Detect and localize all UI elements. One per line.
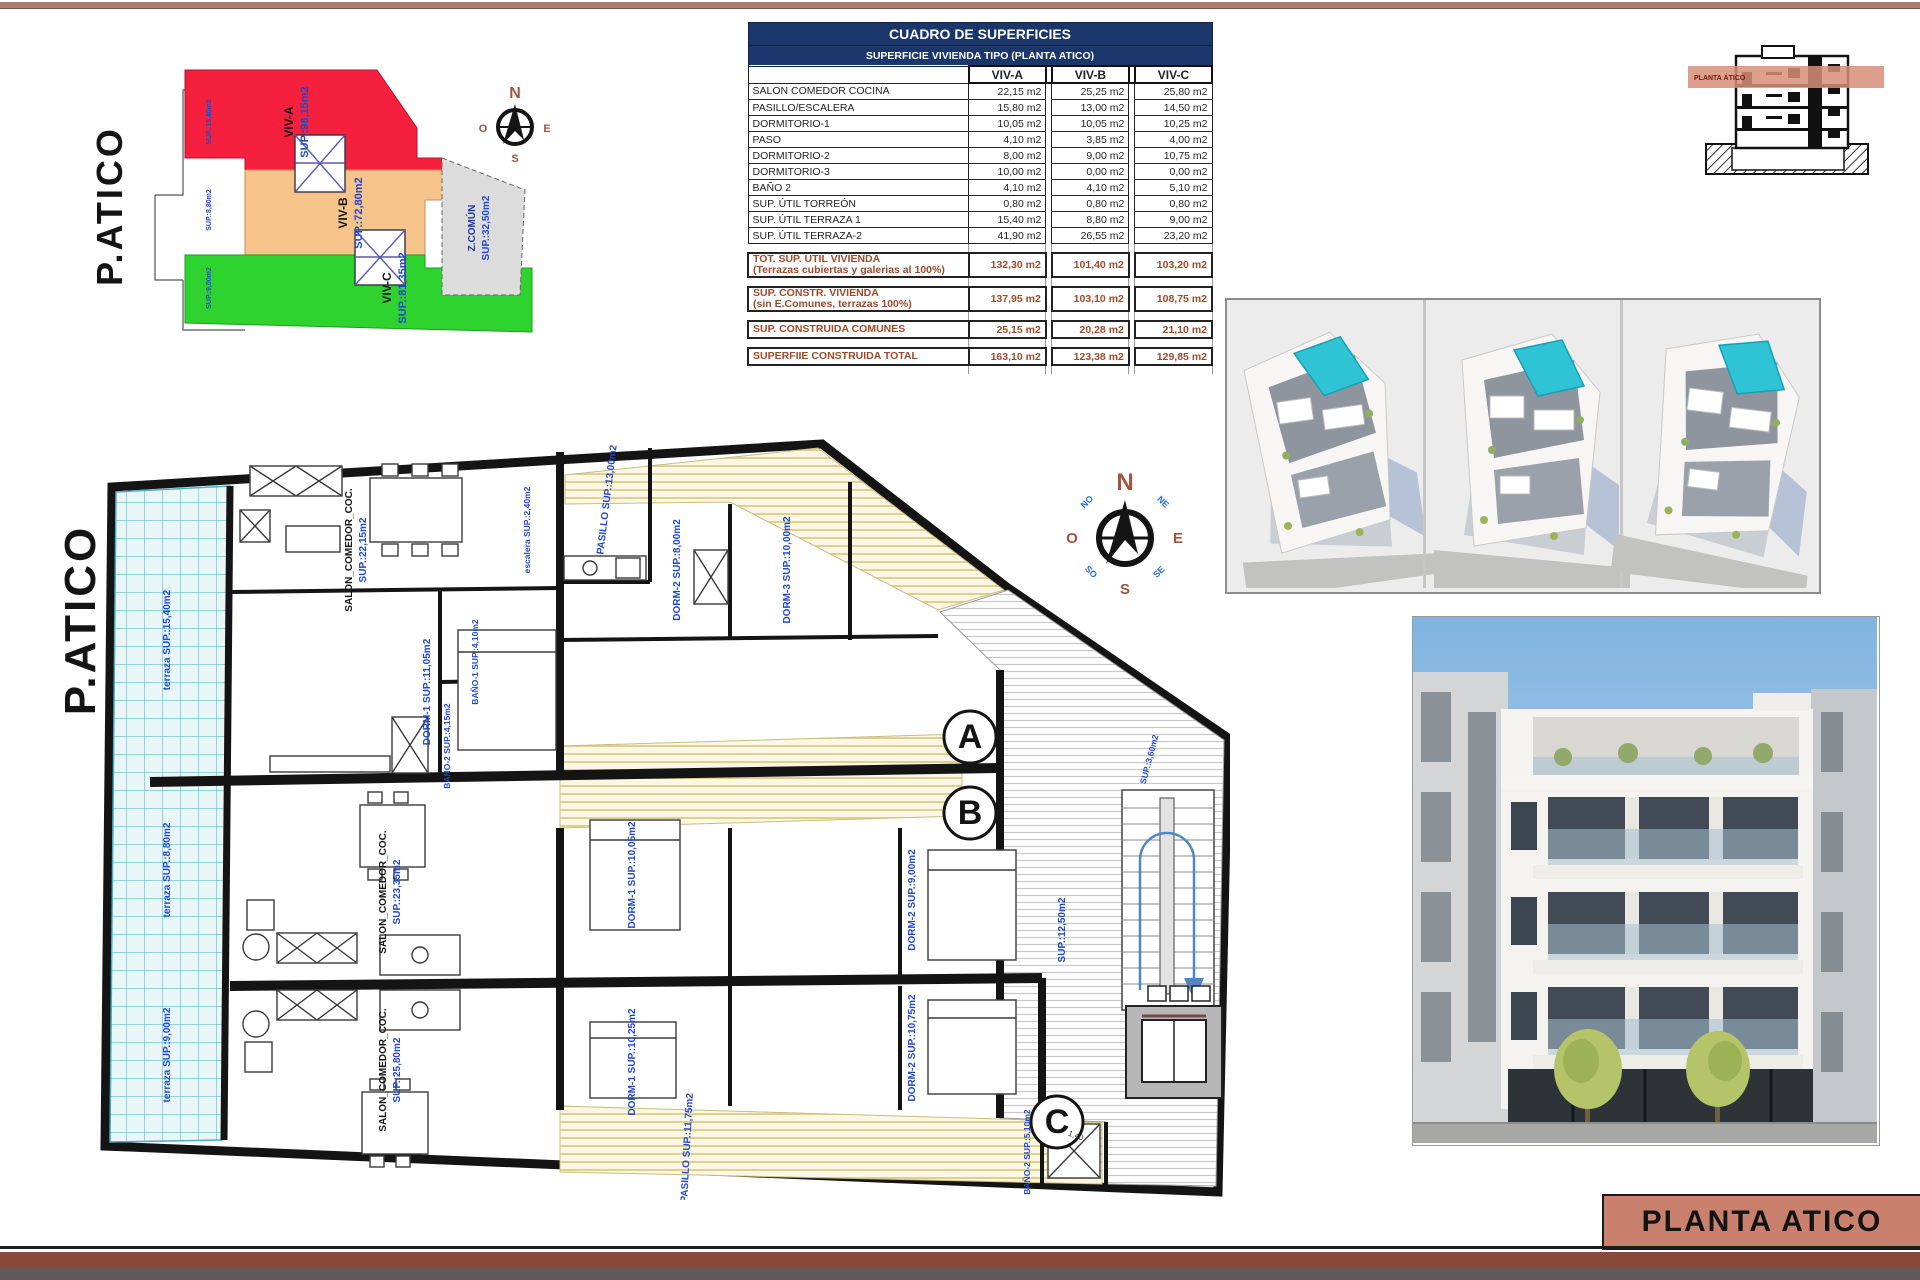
summary-value: 21,10 m2 — [1135, 321, 1212, 338]
ground-floor — [1508, 1069, 1813, 1125]
summary-value: 103,20 m2 — [1135, 253, 1212, 277]
table-value: 8,00 m2 — [969, 148, 1046, 164]
neighbor-building-right — [1811, 689, 1877, 1143]
zone-b-sup: SUP.:72,80m2 — [353, 177, 365, 248]
unit-marker-b: B — [958, 794, 983, 832]
zone-b-name: VIV-B — [336, 197, 350, 229]
table-row-label: PASILLO/ESCALERA — [748, 100, 969, 116]
table-value: 22,15 m2 — [969, 83, 1046, 100]
svg-text:terraza SUP.:15,40m2: terraza SUP.:15,40m2 — [162, 589, 173, 690]
svg-text:DORM-1 SUP.:11,05m2: DORM-1 SUP.:11,05m2 — [422, 638, 433, 745]
svg-text:terraza SUP.:9,00m2: terraza SUP.:9,00m2 — [162, 1007, 173, 1102]
areas-table: CUADRO DE SUPERFICIES SUPERFICIE VIVIEND… — [747, 22, 1213, 374]
svg-text:DORM-1 SUP.:10,25m2: DORM-1 SUP.:10,25m2 — [627, 1008, 638, 1116]
road — [1413, 1123, 1877, 1143]
sheet-title: PLANTA ATICO — [1642, 1205, 1883, 1239]
svg-text:DORM-3 SUP.:10,00m2: DORM-3 SUP.:10,00m2 — [782, 516, 793, 624]
svg-text:N: N — [509, 85, 521, 102]
zone-comun-name: Z.COMÚN — [465, 205, 478, 252]
svg-text:SALON_COMEDOR_COC.: SALON_COMEDOR_COC. — [378, 830, 389, 954]
table-value: 8,80 m2 — [1052, 212, 1129, 228]
summary-row-label: SUP. CONSTR. VIVIENDA(sin E.Comunes, ter… — [748, 287, 969, 311]
table-cell — [1052, 244, 1129, 254]
table-row-label: DORMITORIO-1 — [748, 116, 969, 132]
svg-text:BAÑO-2 SUP.:4,15m2: BAÑO-2 SUP.:4,15m2 — [442, 703, 452, 789]
table-value: 10,05 m2 — [1052, 116, 1129, 132]
svg-text:SUP.:12,50m2: SUP.:12,50m2 — [1057, 897, 1068, 962]
zone-a-sup: SUP.:98,15m2 — [299, 86, 311, 157]
staircase — [1122, 790, 1214, 1010]
svg-text:SUP.:25,80m2: SUP.:25,80m2 — [392, 1037, 403, 1102]
edge-sup-c: SUP.:9,00m2 — [206, 267, 213, 309]
table-cell — [969, 338, 1046, 348]
table-subtitle: SUPERFICIE VIVIENDA TIPO (PLANTA ATICO) — [748, 46, 1212, 67]
floor-plan: A B C PASILLO SUP.:13,00m2 SALON_COMEDOR… — [90, 430, 1230, 1200]
table-value: 0,00 m2 — [1135, 164, 1212, 180]
table-cell — [1052, 338, 1129, 348]
table-value: 0,00 m2 — [1052, 164, 1129, 180]
zone-c-sup: SUP.:81,35m2 — [397, 252, 409, 323]
svg-text:DORM-2 SUP.:8,00m2: DORM-2 SUP.:8,00m2 — [672, 519, 683, 621]
svg-text:terraza SUP.:8,80m2: terraza SUP.:8,80m2 — [162, 822, 173, 917]
table-value: 5,10 m2 — [1135, 180, 1212, 196]
table-cell — [748, 338, 969, 348]
zone-a-name: VIV-A — [282, 106, 296, 138]
svg-text:SALON_COMEDOR_COC.: SALON_COMEDOR_COC. — [378, 1008, 389, 1132]
table-value: 23,20 m2 — [1135, 228, 1212, 244]
table-value: 0,80 m2 — [1135, 196, 1212, 212]
table-value: 9,00 m2 — [1135, 212, 1212, 228]
table-cell — [748, 277, 969, 287]
table-row-label: SUP. ÚTIL TERRAZA-2 — [748, 228, 969, 244]
table-value: 4,10 m2 — [1052, 180, 1129, 196]
col-viv-a: VIV-A — [969, 66, 1046, 83]
summary-value: 129,85 m2 — [1135, 348, 1212, 365]
unit-marker-a: A — [958, 718, 983, 756]
svg-text:DORM-2 SUP.:10,75m2: DORM-2 SUP.:10,75m2 — [907, 994, 918, 1102]
svg-text:DORM-2 SUP.:9,00m2: DORM-2 SUP.:9,00m2 — [907, 849, 918, 951]
edge-sup-a: SUP.:15,40m2 — [206, 99, 213, 145]
facade-render — [1412, 616, 1880, 1146]
sheet-bottom-edge — [0, 1267, 1920, 1280]
svg-text:O: O — [479, 123, 488, 135]
summary-row-label: SUP. CONSTRUIDA COMUNES — [748, 321, 969, 338]
elevator — [1126, 1006, 1222, 1098]
table-value: 41,90 m2 — [969, 228, 1046, 244]
table-row-label: DORMITORIO-3 — [748, 164, 969, 180]
roof-renders-strip — [1225, 298, 1821, 594]
zone-comun-sup: SUP.:32,50m2 — [481, 195, 492, 260]
sheet-bottom-line — [0, 1246, 1920, 1249]
table-cell — [1135, 311, 1212, 321]
summary-value: 163,10 m2 — [969, 348, 1046, 365]
table-cell — [969, 277, 1046, 287]
unit-marker-c: C — [1045, 1103, 1070, 1141]
svg-text:DORM-1 SUP.:10,05m2: DORM-1 SUP.:10,05m2 — [627, 821, 638, 929]
table-value: 4,10 m2 — [969, 132, 1046, 148]
col-viv-c: VIV-C — [1135, 66, 1212, 83]
table-cell — [1135, 277, 1212, 287]
table-value: 4,10 m2 — [969, 180, 1046, 196]
summary-value: 103,10 m2 — [1052, 287, 1129, 311]
table-value: 10,75 m2 — [1135, 148, 1212, 164]
table-value: 10,00 m2 — [969, 164, 1046, 180]
compass-mini-icon: N S E O — [479, 85, 551, 165]
svg-text:SUP.:22,15m2: SUP.:22,15m2 — [358, 517, 369, 582]
table-value: 25,80 m2 — [1135, 83, 1212, 100]
summary-row-label: TOT. SUP. UTIL VIVIENDA(Terrazas cubiert… — [748, 253, 969, 277]
mailboxes-icon — [1148, 986, 1210, 1001]
svg-text:escalera SUP.:2,40m2: escalera SUP.:2,40m2 — [522, 486, 532, 573]
edge-sup-b: SUP.:8,80m2 — [206, 189, 213, 231]
atico-band-label: PLANTA ÁTICO — [1694, 73, 1746, 82]
svg-text:S: S — [511, 153, 518, 165]
table-value: 14,50 m2 — [1135, 100, 1212, 116]
summary-value: 137,95 m2 — [969, 287, 1046, 311]
svg-text:BAÑO-2 SUP.:5,10m2: BAÑO-2 SUP.:5,10m2 — [1022, 1109, 1032, 1195]
table-cell — [748, 244, 969, 254]
summary-value: 101,40 m2 — [1052, 253, 1129, 277]
table-value: 10,05 m2 — [969, 116, 1046, 132]
balcony-floors — [1533, 797, 1803, 1069]
table-cell — [748, 365, 969, 374]
table-cell — [1052, 277, 1129, 287]
table-cell — [1052, 365, 1129, 374]
table-value: 10,25 m2 — [1135, 116, 1212, 132]
table-value: 13,00 m2 — [1052, 100, 1129, 116]
table-cell — [1135, 244, 1212, 254]
table-cell — [969, 365, 1046, 374]
building-section-thumb: PLANTA ÁTICO — [1688, 40, 1884, 182]
table-cell — [748, 311, 969, 321]
corridor-mid — [560, 734, 962, 828]
svg-text:E: E — [543, 123, 550, 135]
table-row-label: SALON COMEDOR COCINA — [748, 83, 969, 100]
svg-text:BAÑO-1 SUP.:4,10m2: BAÑO-1 SUP.:4,10m2 — [470, 619, 480, 705]
table-value: 3,85 m2 — [1052, 132, 1129, 148]
summary-value: 20,28 m2 — [1052, 321, 1129, 338]
table-title: CUADRO DE SUPERFICIES — [748, 23, 1212, 46]
site-plan-mini: VIV-A SUP.:98,15m2 VIV-B SUP.:72,80m2 VI… — [95, 30, 675, 360]
sheet-top-border — [0, 2, 1920, 9]
table-row-label: DORMITORIO-2 — [748, 148, 969, 164]
table-cell — [969, 311, 1046, 321]
table-value: 9,00 m2 — [1052, 148, 1129, 164]
table-row-label: SUP. ÚTIL TORREÓN — [748, 196, 969, 212]
table-cell — [969, 244, 1046, 254]
table-value: 4,00 m2 — [1135, 132, 1212, 148]
table-value: 26,55 m2 — [1052, 228, 1129, 244]
svg-text:SALON_COMEDOR_COC.: SALON_COMEDOR_COC. — [344, 488, 355, 612]
svg-text:SUP.:23,35m2: SUP.:23,35m2 — [392, 859, 403, 924]
title-block: PLANTA ATICO — [1602, 1194, 1920, 1250]
table-corner-cell — [748, 66, 969, 83]
table-row-label: SUP. ÚTIL TERRAZA 1 — [748, 212, 969, 228]
table-row-label: PASO — [748, 132, 969, 148]
summary-value: 108,75 m2 — [1135, 287, 1212, 311]
table-cell — [1052, 311, 1129, 321]
table-value: 0,80 m2 — [969, 196, 1046, 212]
zone-c-name: VIV-C — [380, 272, 394, 304]
col-viv-b: VIV-B — [1052, 66, 1129, 83]
table-cell — [1135, 365, 1212, 374]
summary-value: 132,30 m2 — [969, 253, 1046, 277]
summary-value: 123,38 m2 — [1052, 348, 1129, 365]
summary-row-label: SUPERFIIE CONSTRUIDA TOTAL — [748, 348, 969, 365]
table-value: 25,25 m2 — [1052, 83, 1129, 100]
table-value: 15,80 m2 — [969, 100, 1046, 116]
table-value: 15,40 m2 — [969, 212, 1046, 228]
table-row-label: BAÑO 2 — [748, 180, 969, 196]
table-value: 0,80 m2 — [1052, 196, 1129, 212]
summary-value: 25,15 m2 — [969, 321, 1046, 338]
sheet-bottom-band — [0, 1252, 1920, 1267]
table-cell — [1135, 338, 1212, 348]
